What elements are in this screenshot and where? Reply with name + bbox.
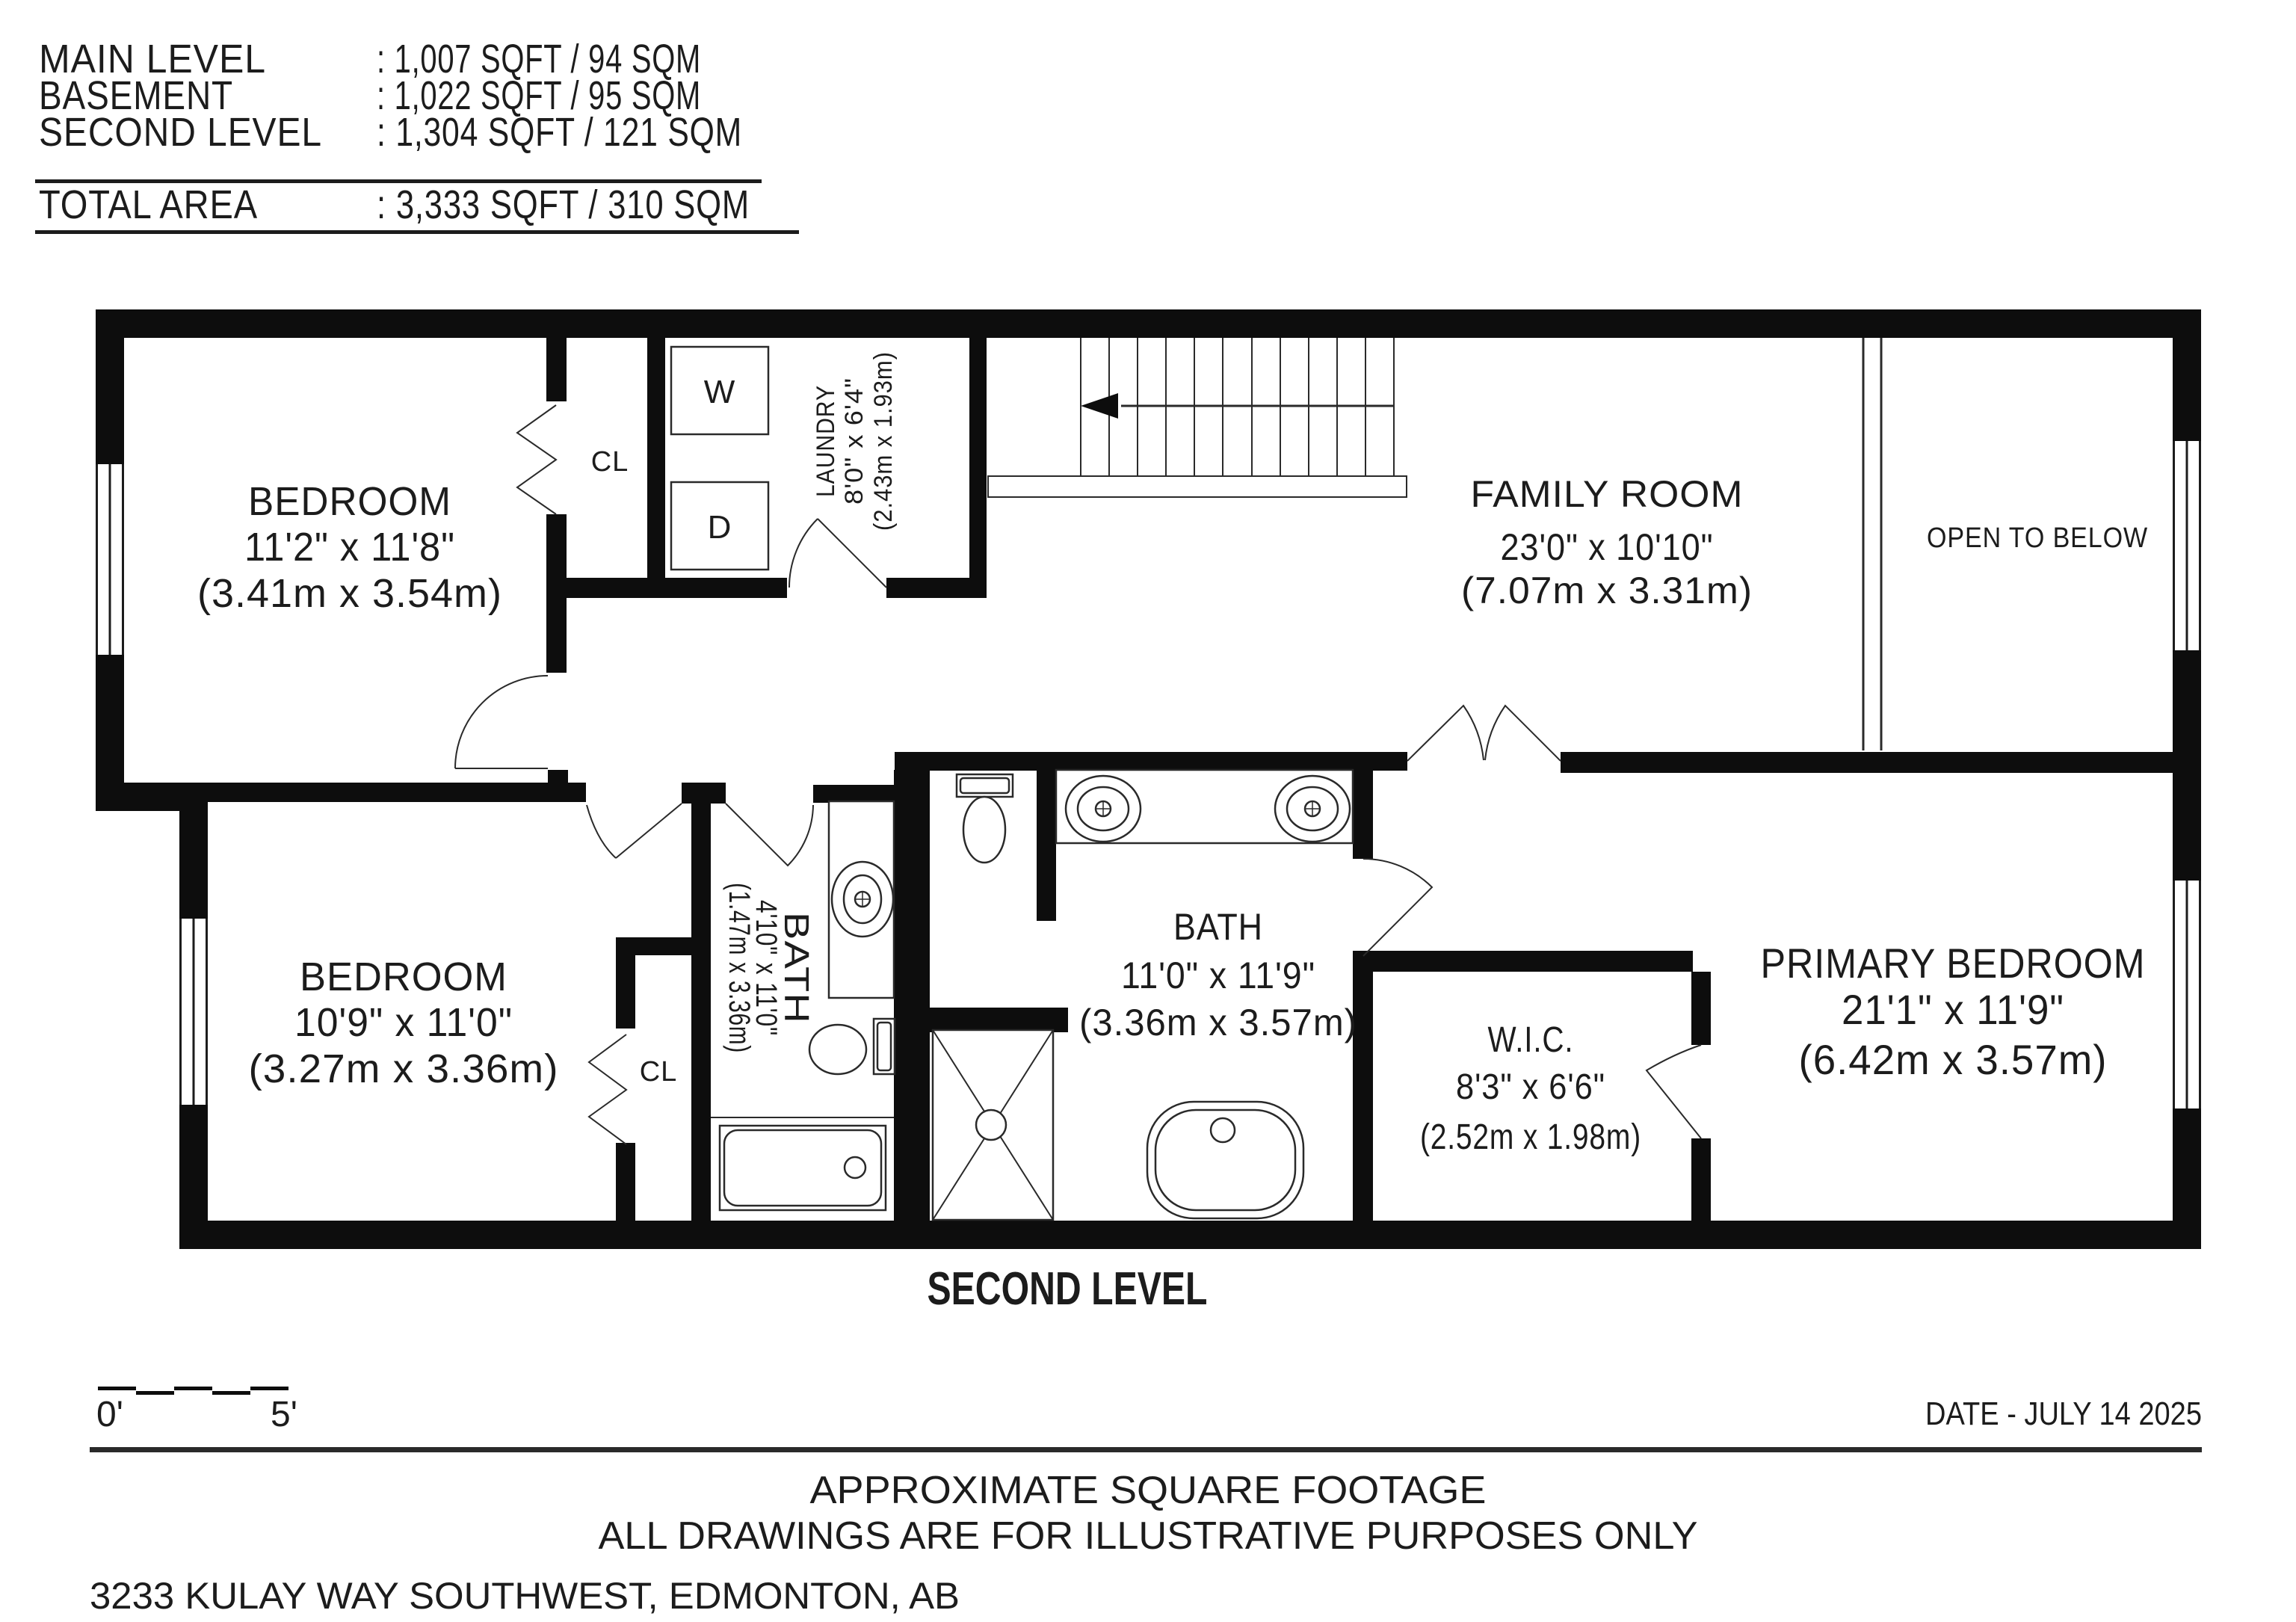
svg-text:CL: CL (640, 1056, 678, 1088)
svg-text:(2.52m x 1.98m): (2.52m x 1.98m) (1420, 1117, 1641, 1157)
svg-text:APPROXIMATE SQUARE FOOTAGE: APPROXIMATE SQUARE FOOTAGE (810, 1469, 1487, 1512)
svg-text:BATH: BATH (1173, 906, 1263, 948)
svg-text:BEDROOM: BEDROOM (300, 955, 507, 999)
svg-text:LAUNDRY: LAUNDRY (812, 385, 840, 497)
svg-text:23'0" x 10'10": 23'0" x 10'10" (1501, 526, 1714, 568)
svg-text:FAMILY ROOM: FAMILY ROOM (1471, 473, 1744, 515)
svg-text:8'3" x 6'6": 8'3" x 6'6" (1456, 1067, 1605, 1107)
svg-text:11'2" x 11'8": 11'2" x 11'8" (244, 525, 455, 570)
svg-text:0': 0' (96, 1395, 123, 1434)
svg-text:OPEN TO BELOW: OPEN TO BELOW (1927, 522, 2148, 554)
svg-text:D: D (708, 509, 732, 546)
svg-text:(3.41m x 3.54m): (3.41m x 3.54m) (197, 571, 502, 616)
svg-text:(6.42m x 3.57m): (6.42m x 3.57m) (1799, 1036, 2108, 1083)
svg-text:3233 KULAY WAY SOUTHWEST, EDMO: 3233 KULAY WAY SOUTHWEST, EDMONTON, AB (90, 1575, 960, 1617)
svg-text:11'0" x 11'9": 11'0" x 11'9" (1121, 955, 1315, 996)
svg-text:5': 5' (271, 1395, 297, 1434)
svg-text:W: W (704, 374, 736, 410)
svg-text:(3.27m x 3.36m): (3.27m x 3.36m) (249, 1046, 559, 1091)
svg-text:(1.47m x 3.36m): (1.47m x 3.36m) (723, 883, 756, 1053)
svg-text:8'0" x 6'4": 8'0" x 6'4" (840, 377, 868, 505)
svg-text:(7.07m x 3.31m): (7.07m x 3.31m) (1461, 570, 1753, 611)
svg-text:ALL DRAWINGS ARE FOR ILLUSTRAT: ALL DRAWINGS ARE FOR ILLUSTRATIVE PURPOS… (599, 1514, 1698, 1558)
svg-text:W.I.C.: W.I.C. (1488, 1020, 1574, 1060)
svg-text:PRIMARY BEDROOM: PRIMARY BEDROOM (1761, 940, 2146, 987)
svg-text:(2.43m x 1.93m): (2.43m x 1.93m) (869, 351, 898, 531)
svg-text:SECOND LEVEL: SECOND LEVEL (928, 1263, 1208, 1315)
svg-text:21'1" x 11'9": 21'1" x 11'9" (1842, 986, 2064, 1033)
svg-text:CL: CL (591, 446, 629, 478)
svg-text:DATE - JULY 14 2025: DATE - JULY 14 2025 (1925, 1396, 2202, 1432)
svg-text:BEDROOM: BEDROOM (248, 479, 451, 524)
svg-text:TOTAL AREA: TOTAL AREA (39, 182, 258, 227)
svg-text:(3.36m x 3.57m): (3.36m x 3.57m) (1079, 1002, 1357, 1043)
svg-text:SECOND LEVEL: SECOND LEVEL (39, 110, 322, 155)
svg-text:: 3,333 SQFT / 310 SQM: : 3,333 SQFT / 310 SQM (377, 182, 750, 227)
svg-text:10'9" x 11'0": 10'9" x 11'0" (294, 1000, 513, 1045)
svg-text:: 1,304 SQFT / 121 SQM: : 1,304 SQFT / 121 SQM (377, 110, 742, 155)
